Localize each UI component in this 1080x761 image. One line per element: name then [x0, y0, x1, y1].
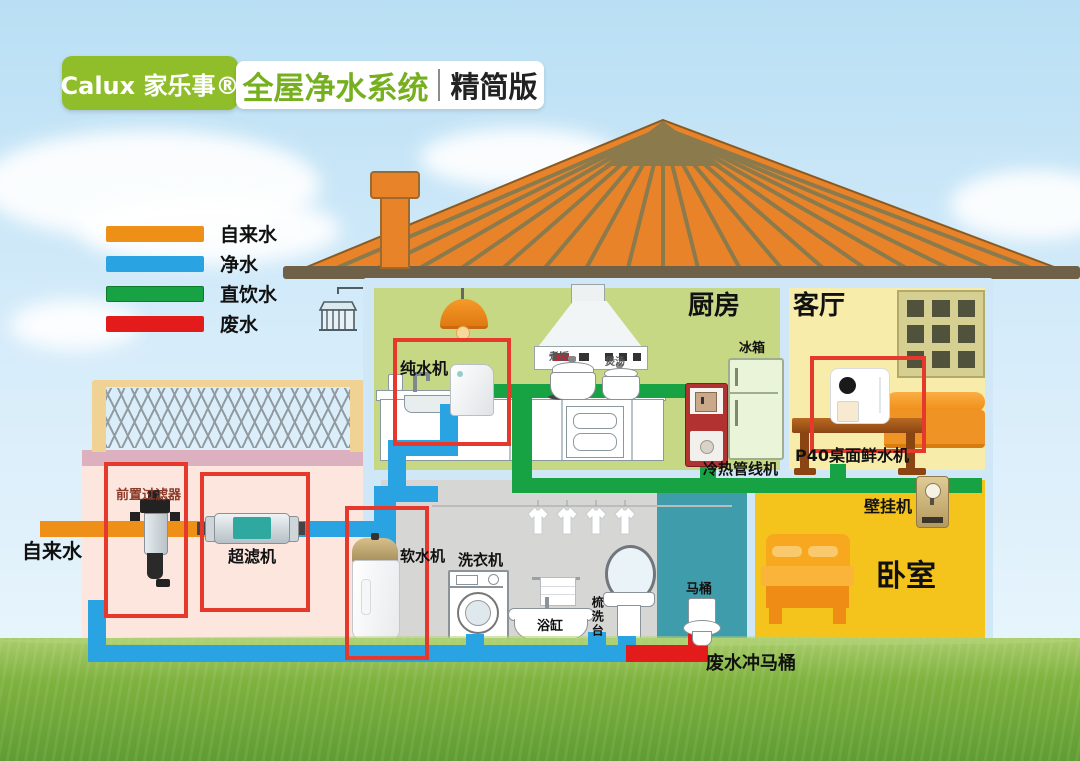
chimney-cap	[371, 172, 419, 198]
fence-post	[350, 380, 364, 452]
wall-machine-slot	[922, 517, 943, 523]
bed-pillow	[808, 546, 838, 557]
washer-dial	[488, 574, 499, 585]
window-pane	[932, 351, 949, 368]
oven-drawer	[573, 413, 617, 429]
room-label-kitchen: 厨房	[688, 292, 740, 321]
edition-badge: 精简版	[450, 64, 537, 106]
legend-item-tap: 自来水	[106, 220, 277, 247]
highlight-box-prefilter	[104, 462, 188, 618]
label-wall-machine: 壁挂机	[864, 498, 912, 516]
label-bathtub: 浴缸	[537, 620, 563, 634]
label-vanity: 梳洗台	[590, 596, 603, 638]
bed-leg	[833, 608, 846, 624]
hood-button	[633, 353, 641, 361]
label-prefilter: 前置过滤器	[116, 489, 181, 503]
bed-base	[766, 586, 849, 608]
hood-button	[579, 353, 589, 361]
highlight-box-softener	[345, 506, 429, 660]
legend-label: 直饮水	[220, 280, 277, 307]
towel-fold	[541, 594, 575, 595]
brand-logo-text: Calux 家乐事®	[61, 66, 240, 101]
label-pipeline-machine: 冷热管线机	[703, 461, 778, 478]
pipe-clean-washer-riser	[466, 634, 484, 650]
pipeline-machine	[685, 383, 728, 467]
counter-divider	[631, 400, 633, 460]
label-pot-soup: 煲汤	[605, 357, 625, 368]
label-fridge: 冰箱	[739, 342, 765, 356]
legend-swatch-drink	[106, 286, 204, 302]
fence-post	[92, 380, 106, 452]
soup-pot	[602, 376, 640, 400]
hanging-shirts	[524, 498, 642, 544]
bed-mattress	[761, 566, 854, 586]
legend-swatch-waste	[106, 316, 204, 332]
label-tap-water: 自来水	[22, 540, 82, 562]
room-label-bedroom: 卧室	[876, 560, 936, 593]
coffee-table-foot	[794, 468, 816, 475]
bed-leg	[769, 608, 782, 624]
window-pane	[958, 300, 975, 317]
title-bar: 全屋净水系统 精简版	[236, 61, 544, 109]
pipe-drink-living-stub	[830, 464, 846, 482]
rice-pot	[550, 372, 596, 400]
label-waste-flush: 废水冲马桶	[706, 654, 796, 674]
fridge	[728, 358, 784, 460]
counter-divider	[561, 400, 563, 460]
rice-pot-knob	[568, 356, 576, 362]
bed-pillow	[772, 546, 802, 557]
highlight-box-pure-water	[393, 338, 511, 446]
page-title: 全屋净水系统	[242, 63, 428, 108]
title-divider	[438, 69, 440, 101]
label-p40: P40桌面鲜水机	[795, 447, 909, 465]
whole-house-water-system-diagram: Calux 家乐事® 全屋净水系统 精简版 自来水 净水 直饮水 废水 厨房 客…	[0, 0, 1080, 761]
legend-label: 净水	[220, 250, 258, 277]
highlight-box-ultrafilter	[200, 472, 310, 612]
washing-machine	[448, 570, 509, 644]
window-pane	[907, 325, 924, 342]
label-ultrafilter: 超滤机	[228, 548, 276, 566]
dispenser-tap	[701, 397, 704, 404]
oven-drawer	[573, 433, 617, 451]
pipe-drink-drop	[512, 396, 532, 486]
label-washer: 洗衣机	[458, 552, 503, 569]
chimney-body	[381, 196, 409, 268]
label-toilet: 马桶	[686, 583, 712, 597]
fence-rail	[92, 380, 364, 387]
legend-item-drink: 直饮水	[106, 280, 277, 307]
window-pane	[958, 351, 975, 368]
brand-logo: Calux 家乐事®	[62, 56, 238, 110]
towel-fold	[541, 586, 575, 587]
pipe-drink-floor	[512, 478, 982, 493]
window-pane	[932, 325, 949, 342]
legend-swatch-tap	[106, 226, 204, 242]
label-pure-water: 纯水机	[400, 360, 448, 378]
label-pot-rice: 煮饭	[549, 352, 569, 363]
window-pane	[907, 300, 924, 317]
oven	[566, 406, 624, 458]
fence-lattice	[106, 388, 350, 448]
fridge-handle	[735, 400, 738, 426]
wall-machine-spout	[930, 498, 934, 505]
label-softener: 软水机	[400, 548, 445, 565]
legend-item-clean: 净水	[106, 250, 258, 277]
room-label-living: 客厅	[793, 292, 845, 321]
washer-panel-line	[450, 586, 503, 588]
legend-label: 废水	[220, 310, 258, 337]
fridge-divider	[730, 392, 778, 394]
fridge-handle	[735, 368, 738, 386]
window-pane	[932, 300, 949, 317]
washer-door-glass	[465, 600, 491, 626]
highlight-box-p40	[810, 356, 926, 453]
toilet-base	[692, 631, 712, 646]
wall-mounted-machine	[916, 476, 949, 528]
washer-display	[456, 575, 478, 585]
dispenser-recess	[695, 392, 717, 412]
legend-label: 自来水	[220, 220, 277, 247]
dispenser-knob	[700, 440, 714, 454]
legend-item-waste: 废水	[106, 310, 258, 337]
coffee-table-foot	[898, 468, 926, 475]
wall-machine-tap	[925, 483, 941, 499]
window-pane	[958, 325, 975, 342]
legend-swatch-clean	[106, 256, 204, 272]
